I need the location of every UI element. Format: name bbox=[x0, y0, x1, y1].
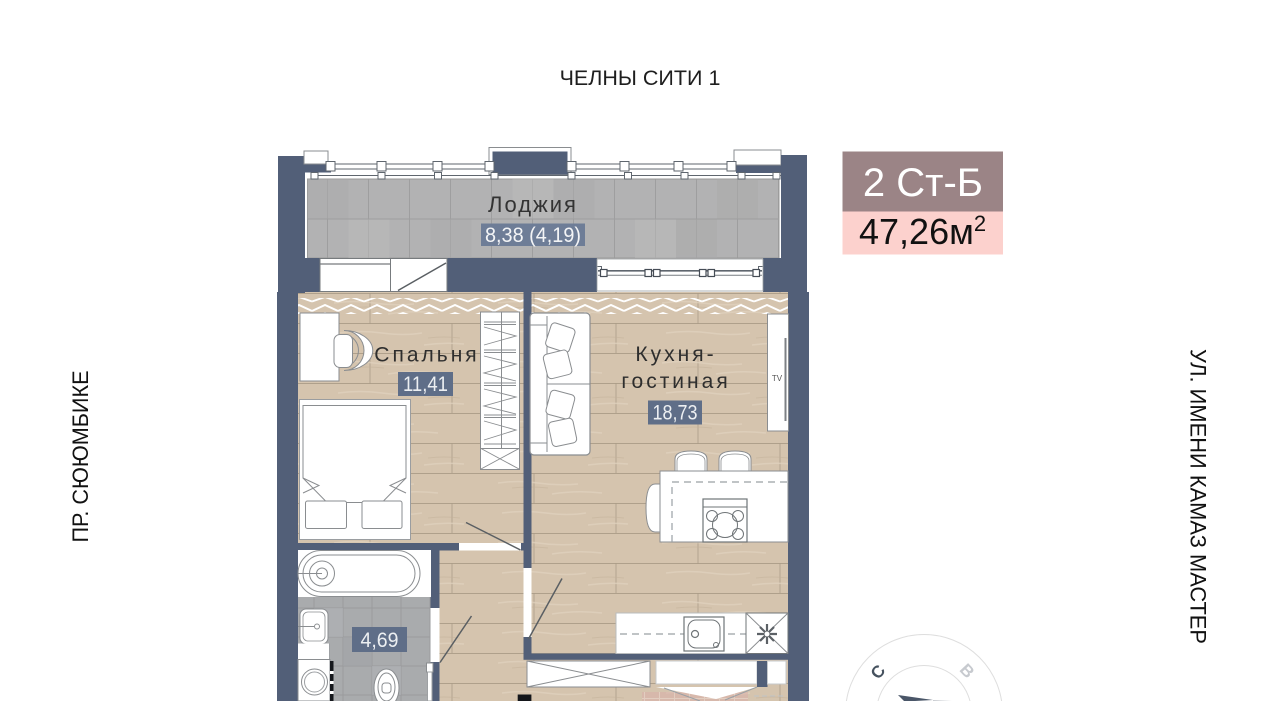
svg-text:8,38 (4,19): 8,38 (4,19) bbox=[485, 223, 581, 247]
svg-text:18,73: 18,73 bbox=[653, 401, 698, 425]
svg-text:Лоджия: Лоджия bbox=[488, 192, 578, 217]
svg-text:11,41: 11,41 bbox=[403, 372, 448, 396]
svg-text:4,69: 4,69 bbox=[361, 628, 399, 652]
svg-text:Спальня: Спальня bbox=[374, 344, 479, 367]
svg-text:ПР. СЮЮМБИКЕ: ПР. СЮЮМБИКЕ bbox=[68, 371, 93, 543]
svg-text:TV: TV bbox=[772, 374, 783, 383]
svg-text:2 Ст-Б: 2 Ст-Б bbox=[863, 161, 983, 205]
svg-text:гостиная: гостиная bbox=[621, 370, 730, 393]
svg-text:ЧЕЛНЫ СИТИ 1: ЧЕЛНЫ СИТИ 1 bbox=[560, 66, 721, 90]
svg-text:47,26м2: 47,26м2 bbox=[859, 211, 986, 252]
svg-text:УЛ. ИМЕНИ КАМАЗ МАСТЕР: УЛ. ИМЕНИ КАМАЗ МАСТЕР bbox=[1186, 349, 1211, 644]
svg-text:Кухня-: Кухня- bbox=[635, 343, 716, 366]
